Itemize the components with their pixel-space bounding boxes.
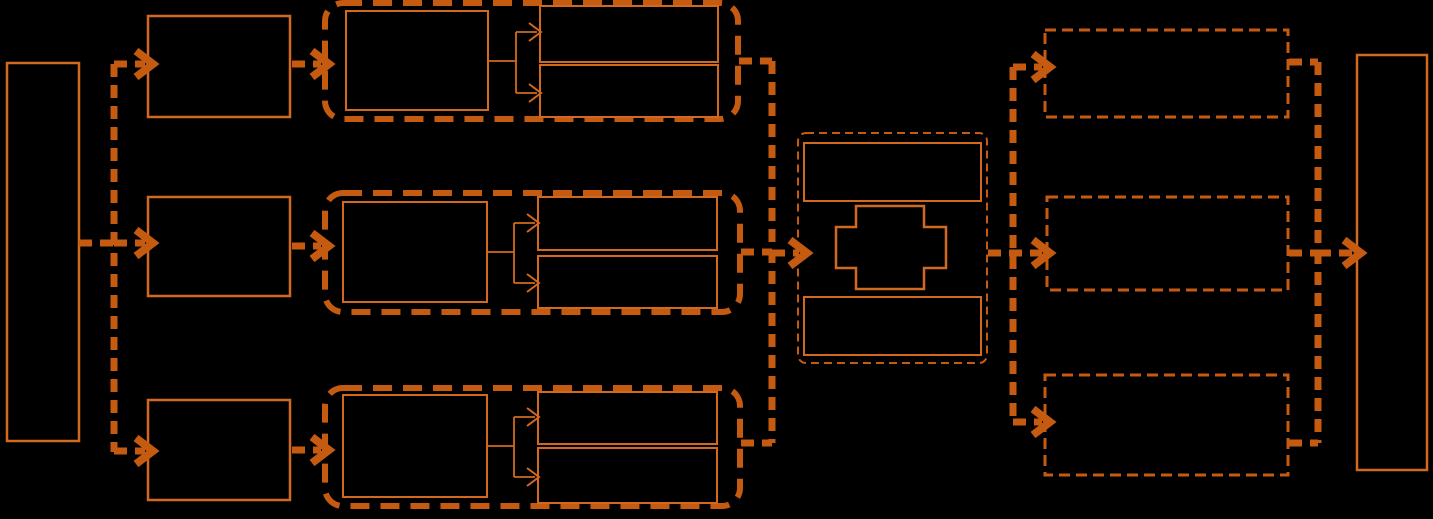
- diagram-canvas: [0, 0, 1433, 519]
- flow-diagram: [0, 0, 1433, 519]
- center-merge-container: [798, 133, 987, 363]
- row2-stage-container: [325, 193, 740, 312]
- right-sink-box: [1357, 55, 1427, 470]
- row3-stage-top-box: [538, 392, 717, 444]
- row1-stage-bottom-box: [540, 65, 718, 117]
- center-top-box: [804, 143, 981, 201]
- row1-input-box: [148, 16, 290, 117]
- right-row2-result-box: [1047, 197, 1288, 290]
- row2-stage-left-box: [343, 202, 487, 302]
- row3-stage-left-box: [343, 395, 487, 497]
- row3-stage-bottom-box: [538, 448, 717, 503]
- row2-stage-bottom-box: [538, 256, 717, 308]
- left-source-box: [7, 63, 79, 441]
- right-row3-result-box: [1045, 375, 1288, 475]
- row3-input-box: [148, 400, 290, 500]
- center-bottom-box: [804, 297, 981, 355]
- center-plus-shape: [836, 206, 946, 289]
- row1-stage-top-box: [540, 6, 718, 62]
- row2-stage-top-box: [538, 197, 717, 250]
- right-row1-result-box: [1045, 30, 1288, 117]
- row1-stage-left-box: [346, 11, 488, 110]
- row2-input-box: [148, 197, 290, 296]
